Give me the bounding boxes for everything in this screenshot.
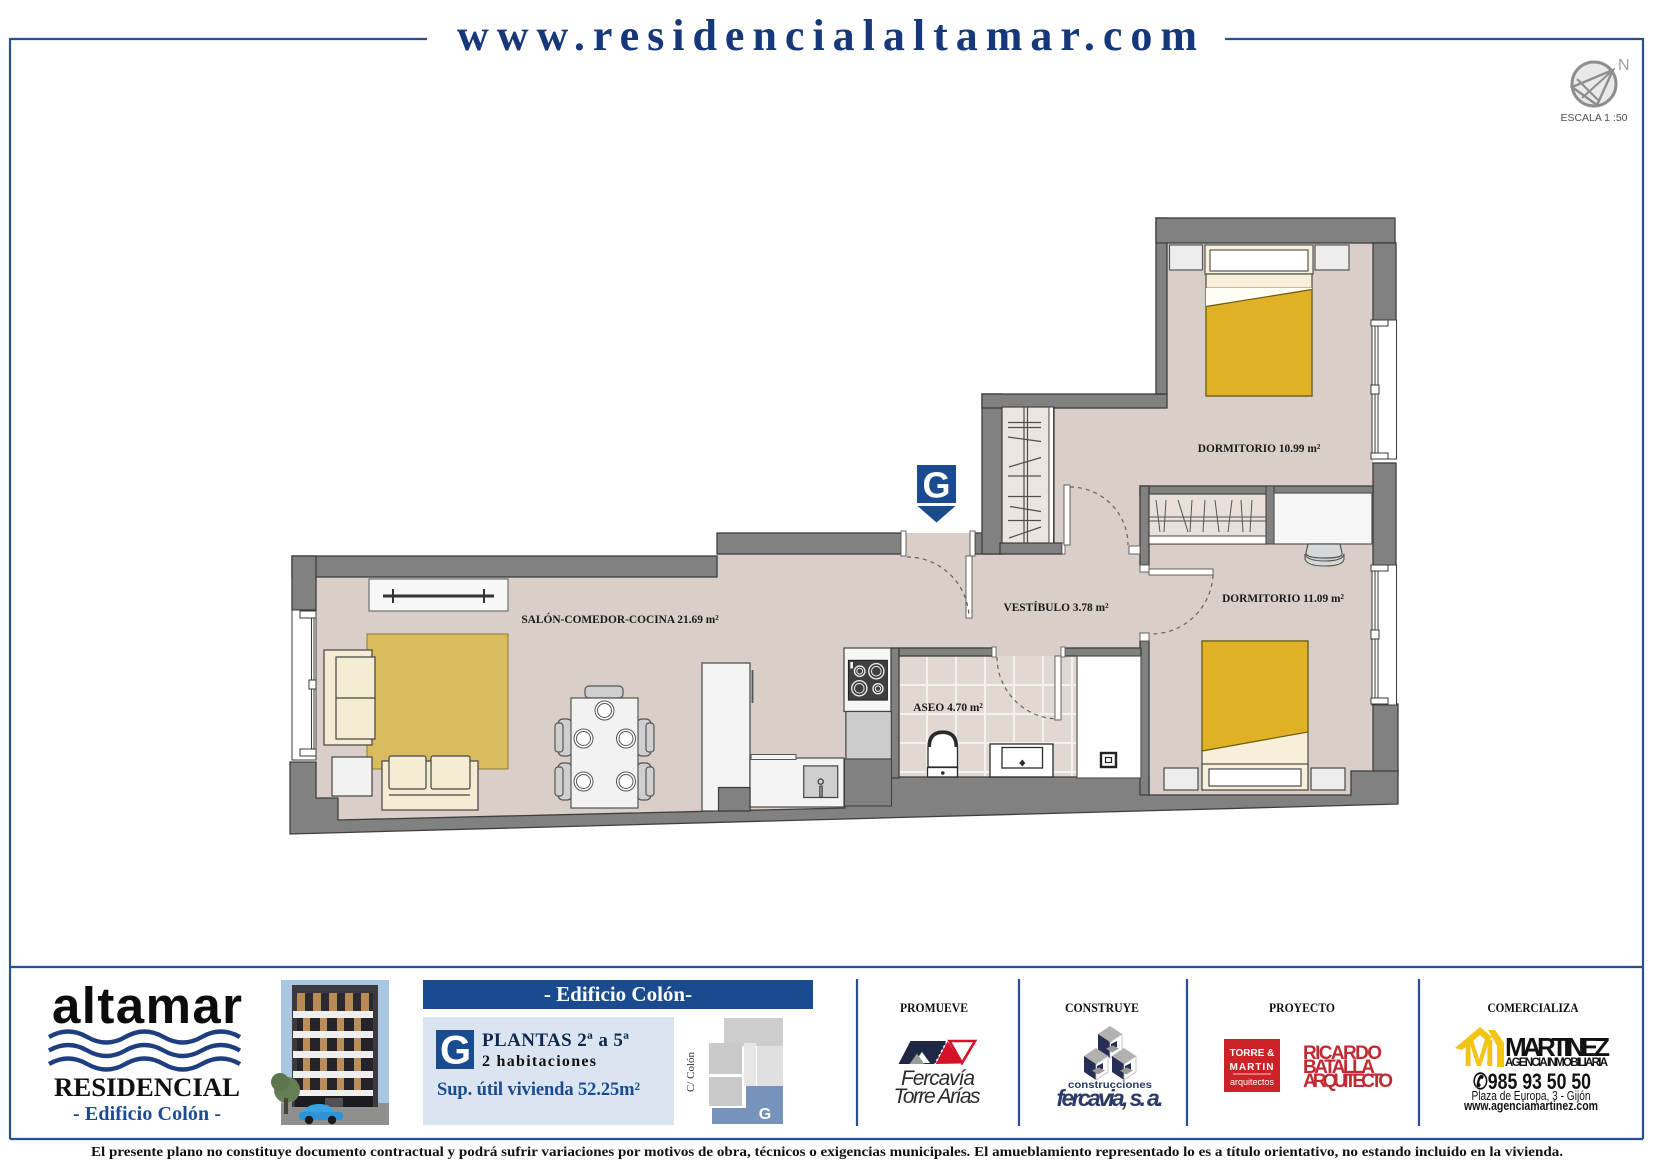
svg-text:CONSTRUYE: CONSTRUYE: [1065, 1000, 1139, 1015]
svg-text:PROMUEVE: PROMUEVE: [900, 1000, 968, 1015]
svg-text:- Edificio Colón-: - Edificio Colón-: [544, 982, 692, 1006]
svg-text:AGENCIA INMOBILIARIA: AGENCIA INMOBILIARIA: [1505, 1057, 1608, 1069]
svg-text:2 habitaciones: 2 habitaciones: [482, 1053, 596, 1070]
svg-text:G: G: [759, 1106, 771, 1123]
svg-text:G: G: [440, 1029, 471, 1073]
svg-text:- Edificio Colón -: - Edificio Colón -: [73, 1103, 221, 1125]
svg-text:Torre Arías: Torre Arías: [894, 1085, 982, 1108]
svg-text:www.agenciamartinez.com: www.agenciamartinez.com: [1463, 1099, 1598, 1113]
svg-text:Sup. útil vivienda 52.25m²: Sup. útil vivienda 52.25m²: [437, 1080, 640, 1100]
svg-text:El presente plano no constituy: El presente plano no constituye document…: [91, 1144, 1563, 1159]
svg-text:ESCALA 1 :50: ESCALA 1 :50: [1561, 112, 1628, 124]
svg-text:PROYECTO: PROYECTO: [1269, 1000, 1335, 1015]
svg-text:MARTIN: MARTIN: [1230, 1062, 1275, 1073]
svg-text:PLANTAS 2ª a 5ª: PLANTAS 2ª a 5ª: [482, 1030, 629, 1051]
svg-text:VESTÍBULO 3.78 m²: VESTÍBULO 3.78 m²: [1003, 602, 1109, 614]
svg-text:ASEO 4.70 m²: ASEO 4.70 m²: [913, 702, 983, 714]
svg-text:arquitectos: arquitectos: [1230, 1077, 1275, 1087]
svg-text:DORMITORIO 11.09 m²: DORMITORIO 11.09 m²: [1222, 593, 1344, 605]
svg-text:TORRE &: TORRE &: [1230, 1048, 1275, 1059]
svg-text:ARQUITECTO: ARQUITECTO: [1303, 1071, 1393, 1092]
svg-text:DORMITORIO 10.99 m²: DORMITORIO 10.99 m²: [1198, 443, 1321, 455]
svg-text:RESIDENCIAL: RESIDENCIAL: [54, 1073, 240, 1102]
svg-text:fercavia, s. a.: fercavia, s. a.: [1057, 1085, 1164, 1111]
svg-text:COMERCIALIZA: COMERCIALIZA: [1488, 1000, 1580, 1015]
svg-text:N: N: [1618, 57, 1630, 74]
svg-text:G: G: [922, 465, 950, 506]
svg-text:SALÓN-COMEDOR-COCINA 21.69 m²: SALÓN-COMEDOR-COCINA 21.69 m²: [521, 614, 719, 626]
svg-text:C/ Colón: C/ Colón: [685, 1051, 697, 1092]
